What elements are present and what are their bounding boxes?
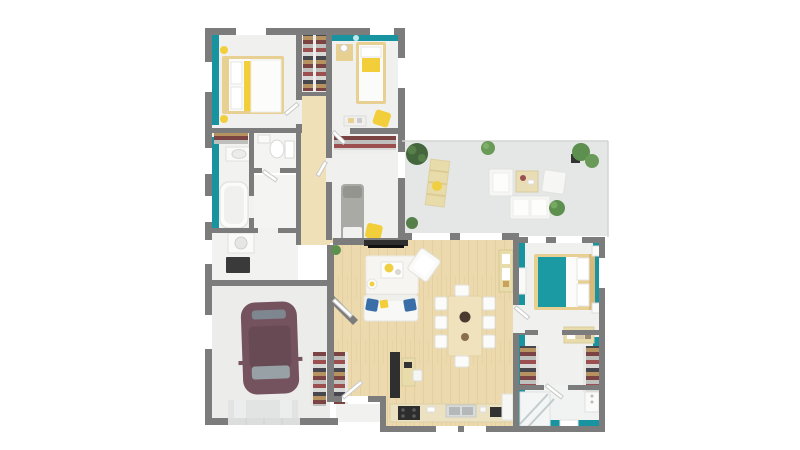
plant-terrace-sofa-highlight: [551, 202, 558, 209]
plant-living: [331, 245, 341, 255]
garage-shelf-edge: [310, 352, 313, 406]
door-gap-laundry: [258, 228, 278, 233]
mbath-vanity-knob-b: [591, 401, 594, 404]
closet-rack-b: [316, 33, 326, 91]
dressing-wardrobe-left: [520, 346, 536, 390]
dining-chair-r3: [483, 335, 495, 348]
floor-plan-canvas: [0, 0, 800, 450]
bed1-duvet: [251, 60, 281, 112]
wall-bed1-bottom: [205, 128, 302, 133]
terrace-coffee-table: [516, 171, 538, 192]
kitchen-desk-item: [404, 362, 412, 368]
window-bed1-left: [205, 62, 212, 92]
fridge: [390, 352, 400, 398]
bookshelf-shelf-a: [502, 254, 510, 264]
bed2-pillow: [361, 47, 381, 57]
plant-terrace-small: [406, 217, 418, 229]
terrace-armchair-cushion: [493, 173, 509, 192]
terrace-lounger-cushion: [432, 181, 442, 191]
mbath-vanity-knob-a: [591, 395, 594, 398]
plant-terrace-sofa: [549, 200, 565, 216]
bed2-blanket: [362, 58, 380, 72]
floor-corridor: [254, 175, 298, 230]
wall-bottom: [380, 426, 605, 432]
window-bath-left-b: [205, 196, 212, 222]
door-gap-office: [326, 158, 332, 182]
master-bed-headboard: [589, 254, 595, 310]
plant-terrace-top-highlight: [483, 143, 489, 149]
kitchen-appliance: [490, 407, 502, 417]
bed1-pillow-a: [231, 62, 242, 84]
dressing-wardrobe-left-edge: [536, 346, 539, 390]
window-bath-left-a: [205, 148, 212, 174]
bed1-lamp-a: [220, 46, 228, 54]
wc-sink: [258, 135, 270, 143]
stove-burner-b: [412, 408, 416, 412]
master-bed-pillow-a: [577, 258, 589, 280]
sink-basin-a: [449, 407, 460, 415]
floor-porch: [336, 404, 380, 422]
window-bed2-right: [398, 58, 405, 88]
window-laundry-left: [205, 240, 212, 264]
dining-chair-bottom: [455, 356, 469, 367]
dining-chair-top: [455, 285, 469, 296]
plant-terrace-tree-highlight-a: [408, 146, 417, 155]
dining-chair-l1: [435, 297, 447, 310]
terrace-table-item-a: [520, 175, 526, 181]
window-kitchen-a: [436, 426, 458, 432]
sink-basin-b: [462, 407, 473, 415]
wc-toilet-bowl: [270, 140, 284, 158]
master-bed-duvet-teal: [538, 257, 566, 307]
wc-toilet-tank: [285, 141, 294, 158]
wall-closet-bottom: [296, 92, 332, 96]
terrace-sofa-cushion-b: [531, 199, 547, 216]
window-master-right: [599, 258, 605, 288]
master-desk: [518, 268, 526, 294]
bed2-wall-decor: [353, 35, 359, 41]
sliding-door-terrace-b: [460, 233, 502, 240]
bookshelf-item: [503, 281, 509, 287]
window-office-right: [398, 152, 405, 178]
tv-screen: [368, 245, 404, 248]
dining-chair-l3: [435, 335, 447, 348]
terrace-table-item-b: [528, 180, 534, 184]
dining-chair-r1: [483, 297, 495, 310]
car-windshield: [252, 365, 290, 379]
wall-living-garage: [327, 245, 334, 402]
sliding-door-terrace-a: [412, 233, 450, 240]
car-mirror-a: [238, 361, 243, 365]
stove-burner-a: [401, 408, 405, 412]
dining-centerpiece-a: [460, 312, 471, 323]
closet-rack-a: [303, 33, 313, 91]
laundry-unit: [226, 257, 250, 273]
counter-item-b: [480, 407, 486, 412]
window-garage-left: [205, 315, 212, 349]
dining-centerpiece-b: [461, 333, 469, 341]
kitchen-chair: [413, 370, 422, 381]
window-kitchen-b: [464, 426, 486, 432]
sofa-pillow-right: [403, 298, 417, 312]
kitchen-end-cabinet: [502, 394, 513, 420]
bath-basin: [232, 150, 246, 159]
coffee-table-decor-b: [395, 269, 401, 275]
window-bed2-top: [370, 28, 394, 35]
wall-laundry-top: [205, 228, 298, 233]
bath-tub-inner: [224, 186, 244, 224]
master-bed-pillow-b: [577, 284, 589, 306]
wall-closet-bed2: [326, 28, 332, 133]
wall-office-left: [326, 133, 332, 240]
teal-wall-bedroom1: [212, 35, 219, 125]
dining-chair-r2: [483, 316, 495, 329]
bookshelf-shelf-b: [502, 268, 510, 280]
stove: [398, 406, 420, 420]
door-gap-dressing: [538, 330, 562, 335]
bed1-yellow-runner: [244, 61, 251, 111]
window-master-top-a: [528, 237, 546, 243]
sofa-pillow-yellow: [379, 299, 388, 308]
terrace-ottoman: [542, 170, 567, 195]
bed2-desk: [344, 116, 366, 126]
window-master-top-b: [556, 237, 582, 243]
driveway-track-left: [234, 400, 246, 418]
plant-terrace-tree: [406, 143, 428, 165]
teal-wall-bedroom2: [330, 35, 402, 41]
plant-terrace-right-b: [585, 154, 599, 168]
office-wardrobe-edge: [334, 150, 396, 153]
car-mirror-b: [297, 357, 302, 361]
bath-wardrobe: [214, 132, 248, 144]
stove-burner-d: [412, 414, 416, 418]
driveway-track-right: [280, 400, 292, 418]
bed1-pillow-b: [231, 87, 242, 109]
window-bed1-top: [236, 28, 266, 35]
door-gap-bathroom: [249, 196, 254, 218]
living-side-table-decor: [370, 282, 375, 287]
bed2-desk-item-b: [357, 118, 362, 123]
dining-table: [448, 296, 482, 356]
car-rear-window: [252, 309, 286, 319]
coffee-table-decor-a: [385, 264, 394, 273]
floor-plan-stage: [0, 0, 800, 450]
master-bed-duvet-white: [566, 257, 578, 307]
bed2-lamp: [341, 45, 348, 52]
bed2-desk-item-a: [348, 118, 354, 123]
stove-burner-c: [401, 414, 405, 418]
counter-item-a: [427, 407, 435, 412]
car-roof: [248, 325, 291, 368]
sofa-pillow-left: [365, 298, 379, 312]
bed1-lamp-b: [220, 115, 228, 123]
garage-shelf: [312, 352, 326, 406]
washing-machine-door: [235, 237, 247, 249]
terrace-sofa-cushion-a: [513, 199, 529, 216]
teal-wall-bathroom: [212, 137, 219, 228]
wall-laundry-bottom: [205, 280, 334, 286]
office-chaise-head: [343, 186, 362, 198]
floor-hallway: [298, 95, 330, 245]
plant-terrace-tree-highlight-b: [418, 154, 426, 162]
closet-rack-divider: [313, 33, 316, 91]
dining-chair-l2: [435, 316, 447, 329]
